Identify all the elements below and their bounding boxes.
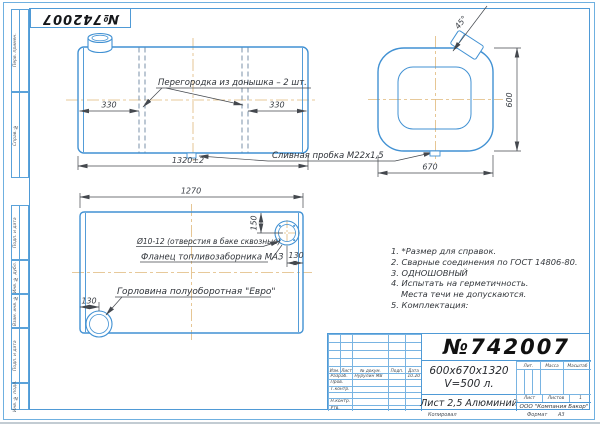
note-line: 3. ОДНОШОВНЫЙ [391,268,591,279]
neck-label-leader [106,297,271,315]
lit-massa-masshtab-values [516,369,591,394]
note-line: 1. *Размер для справок. [391,246,591,257]
note-line: 2. Сварные соединения по ГОСТ 14806-80. [391,257,591,268]
col-dokum: № докум. [352,366,388,373]
dim-45-value: 45° [453,14,469,31]
lit-label: Лит. [516,361,540,369]
dim-330-right-value: 330 [269,101,284,110]
end-view: 45° 600 670 [368,6,521,177]
row-utv: Утв. [328,405,352,411]
listov-label: Листов [542,394,569,402]
col-izm: Изм. [328,366,340,373]
drain-label: Сливная пробка М22х1,5 [272,151,384,161]
change-table [328,334,421,366]
listov-value: 1 [569,394,591,402]
dim-130-right-value: 130 [288,251,303,260]
partition-label-leaders [143,88,311,107]
sheet-count-row: Лист Листов 1 [516,394,591,402]
dim-670-value: 670 [422,163,437,172]
kopiroval-label: Копировал [428,412,457,418]
format-value: А3 [558,412,565,418]
col-data: Дата [405,366,421,373]
end-view-neck-stub [450,30,484,60]
dim-1270-value: 1270 [181,187,201,196]
signature-table: Разраб. Нурулин МВ 10.20 Пров. Т.контр. … [328,373,421,411]
dim-150-value: 150 [250,215,259,230]
dim-330-left-value: 330 [101,101,116,110]
size-cell: 600х670х1320 V=500 л. [421,361,516,394]
dim-1320-value: 1320±2 [172,156,204,165]
lit-massa-masshtab-header: Лит. Масса Масштаб [516,361,591,369]
drawing-number: №742007 [421,334,591,361]
tank-end-inner-contour [398,67,471,129]
dim-130-left-value: 130 [81,297,96,306]
col-list: Лист [340,366,352,373]
partition-label: Перегородка из донышка – 2 шт. [158,78,307,88]
flange-label: Фланец топливозаборника МАЗ [141,253,284,263]
note-line: 5. Комплектация: [391,300,591,311]
column-header-row: Изм. Лист № докум. Подп. Дата [328,366,421,373]
tank-volume: V=500 л. [444,378,493,391]
col-podp: Подп. [388,366,405,373]
top-view: 1270 150 130 130 Ø10-12 (отверстия в бак… [72,187,312,341]
holes-label: Ø10-12 (отверстия в баке сквозные) [136,237,281,246]
material-cell: Лист 2,5 Алюминий [421,394,516,411]
overall-dimensions: 600х670х1320 [429,365,508,378]
title-block: Изм. Лист № докум. Подп. Дата Разраб. Ну… [327,333,590,410]
masshtab-label: Масштаб [563,361,591,369]
filler-neck-circle [86,311,112,337]
end-drain-notch [430,151,440,156]
technical-notes: 1. *Размер для справок. 2. Сварные соеди… [391,246,591,311]
format-label: Формат [527,412,547,418]
list-label: Лист [516,394,542,402]
note-line: Места течи не допускаются. [391,289,591,300]
note-line: 4. Испытать на герметичность. [391,278,591,289]
drawing-sheet: Перв. примен. Справ. № Подп. и дата Инв.… [0,0,600,424]
filler-neck [88,34,112,53]
company-name: ООО "Компания Бакор" [516,402,591,411]
neck-label: Горловина полуоборотная "Евро" [117,287,276,297]
massa-label: Масса [540,361,563,369]
dim-600-value: 600 [505,92,514,107]
